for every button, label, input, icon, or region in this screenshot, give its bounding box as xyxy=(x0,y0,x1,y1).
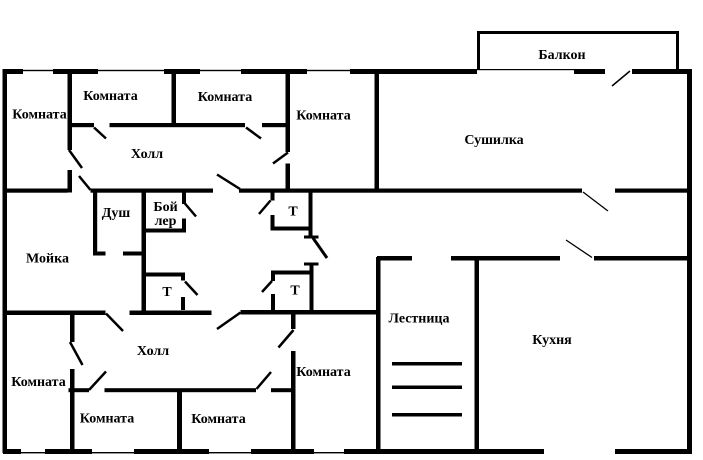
svg-text:Кухня: Кухня xyxy=(532,333,572,348)
svg-text:Т: Т xyxy=(162,285,172,300)
svg-text:Комната: Комната xyxy=(80,412,134,427)
svg-text:Т: Т xyxy=(288,205,298,220)
svg-text:Холл: Холл xyxy=(131,147,163,162)
svg-text:Душ: Душ xyxy=(102,206,131,221)
svg-text:Лестница: Лестница xyxy=(388,312,449,327)
svg-text:Комната: Комната xyxy=(12,108,66,123)
svg-text:Комната: Комната xyxy=(296,365,350,380)
svg-text:Балкон: Балкон xyxy=(538,48,585,63)
svg-text:Т: Т xyxy=(290,284,300,299)
svg-text:лер: лер xyxy=(155,214,177,229)
svg-text:Мойка: Мойка xyxy=(26,252,69,267)
svg-text:Комната: Комната xyxy=(296,109,350,124)
svg-text:Комната: Комната xyxy=(198,90,252,105)
svg-text:Сушилка: Сушилка xyxy=(464,133,523,148)
svg-text:Комната: Комната xyxy=(11,375,65,390)
svg-text:Холл: Холл xyxy=(137,344,169,359)
svg-text:Бой: Бой xyxy=(153,200,177,215)
svg-text:Комната: Комната xyxy=(83,89,137,104)
svg-text:Комната: Комната xyxy=(191,412,245,427)
